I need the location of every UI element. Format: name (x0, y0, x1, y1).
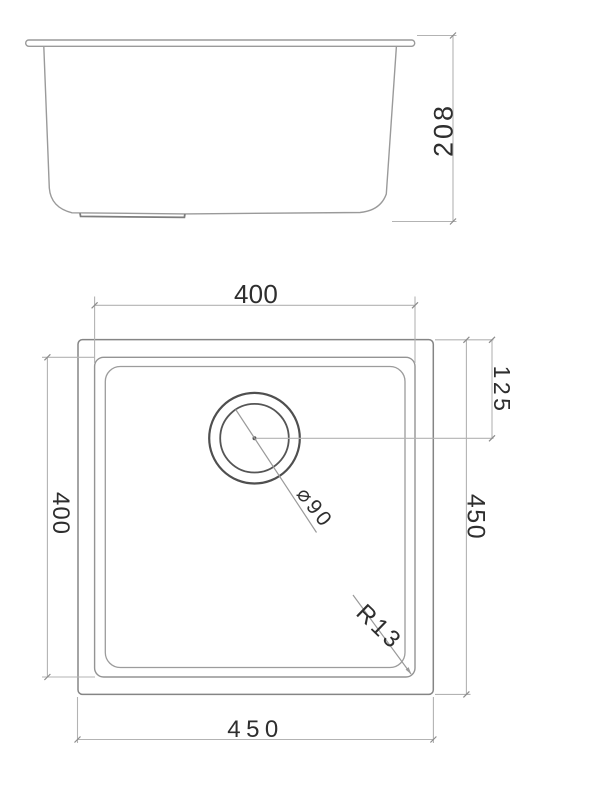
svg-text:⌀90: ⌀90 (292, 483, 338, 533)
svg-text:400: 400 (234, 279, 278, 309)
svg-text:125: 125 (489, 366, 515, 415)
svg-text:R13: R13 (351, 599, 408, 655)
svg-text:208: 208 (429, 103, 459, 157)
svg-text:400: 400 (47, 492, 74, 535)
svg-text:450: 450 (227, 716, 284, 743)
svg-text:450: 450 (462, 494, 490, 540)
